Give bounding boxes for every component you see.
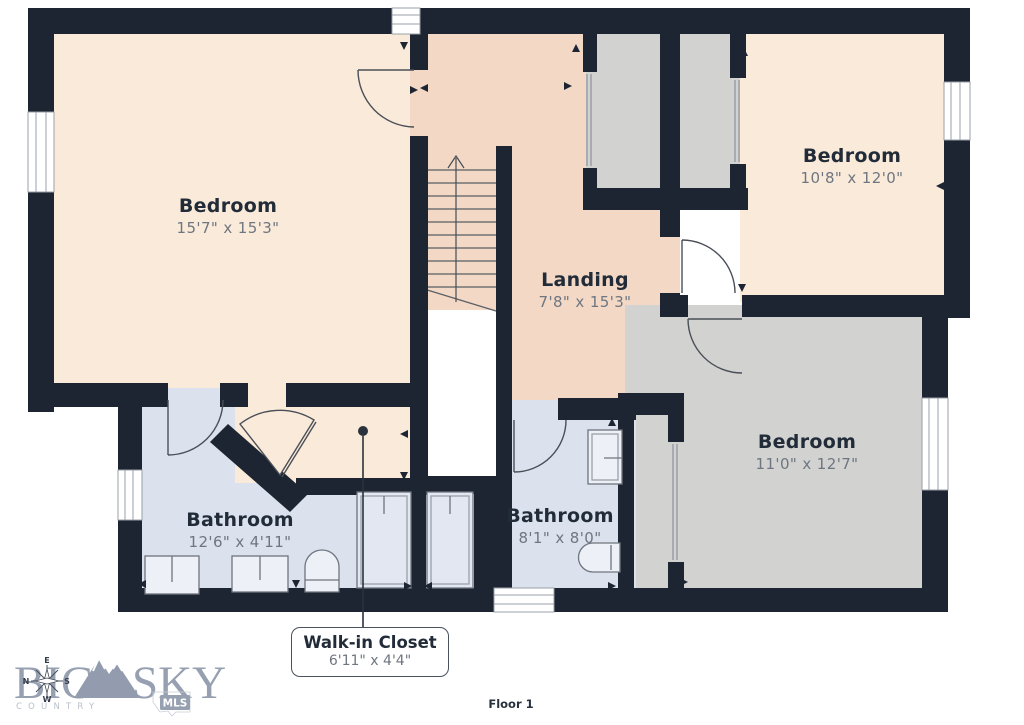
compass-s: S: [64, 677, 70, 686]
logo-subtitle-country: COUNTRY: [16, 702, 100, 712]
wall-top: [28, 8, 952, 34]
room-label-bedroom-c: Bedroom 11'0" x 12'7": [756, 431, 859, 473]
room-label-bedroom-a: Bedroom 15'7" x 15'3": [177, 195, 280, 237]
room-name: Bathroom: [506, 505, 614, 527]
window-right-bedroom-icon: [944, 82, 970, 140]
window-top-icon: [392, 8, 420, 34]
leader-dot: [358, 426, 368, 436]
room-dimensions: 12'6" x 4'11": [186, 533, 294, 551]
room-name: Bedroom: [801, 145, 904, 167]
room-name: Walk-in Closet: [294, 633, 446, 652]
room-dimensions: 10'8" x 12'0": [801, 169, 904, 187]
room-label-bathroom-a: Bathroom 12'6" x 4'11": [186, 509, 294, 551]
room-label-bedroom-b: Bedroom 10'8" x 12'0": [801, 145, 904, 187]
floor-caption: Floor 1: [488, 697, 533, 711]
compass-e: E: [44, 656, 49, 665]
door-bedroom-b-icon: [682, 240, 735, 293]
vanity-sink-icon: [232, 556, 288, 592]
room-name: Bedroom: [177, 195, 280, 217]
toilet-icon: [579, 543, 621, 572]
compass-n: N: [23, 677, 30, 686]
vanity-sink-icon: [588, 430, 622, 484]
vanity-sink-icon: [145, 556, 199, 594]
room-dimensions: 15'7" x 15'3": [177, 219, 280, 237]
big-sky-mls-logo: BIG SKY E N S W COUNTRY MLS: [10, 632, 235, 720]
window-left-bathroom-icon: [118, 470, 142, 520]
room-name: Landing: [539, 269, 632, 291]
mls-badge-label: MLS: [163, 698, 188, 710]
window-bottom-icon: [494, 588, 554, 612]
room-name: Bathroom: [186, 509, 294, 531]
floor-plan-drawing: [0, 0, 1024, 725]
room-label-bathroom-b: Bathroom 8'1" x 8'0": [506, 505, 614, 547]
window-left-bedroom-icon: [28, 112, 54, 192]
walk-in-closet-callout: Walk-in Closet 6'11" x 4'4": [291, 627, 449, 677]
room-name: Bedroom: [756, 431, 859, 453]
toilet-icon: [305, 550, 339, 592]
wall-left: [28, 8, 54, 412]
shower-stall-icon: [427, 492, 473, 588]
stairwell-void: [425, 310, 497, 480]
window-right-lower-icon: [922, 398, 948, 490]
room-dimensions: 8'1" x 8'0": [506, 529, 614, 547]
room-dimensions: 6'11" x 4'4": [294, 653, 446, 669]
room-label-landing: Landing 7'8" x 15'3": [539, 269, 632, 311]
wall-right-upper: [944, 8, 970, 318]
floor-plan-page: Bedroom 15'7" x 15'3" Bedroom 10'8" x 12…: [0, 0, 1024, 725]
room-dimensions: 11'0" x 12'7": [756, 455, 859, 473]
room-dimensions: 7'8" x 15'3": [539, 293, 632, 311]
shower-stall-icon: [357, 492, 411, 588]
